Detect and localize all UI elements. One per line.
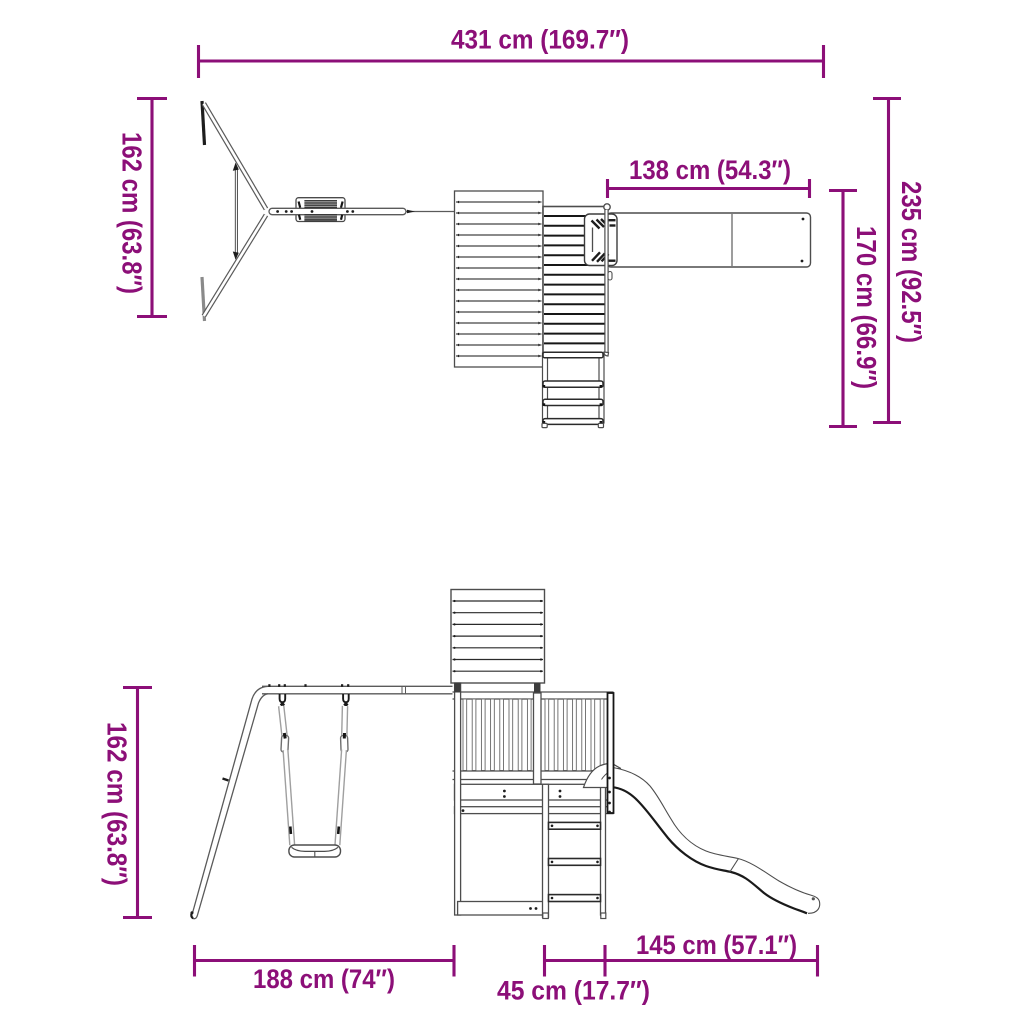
- svg-text:45 cm (17.7″): 45 cm (17.7″): [497, 976, 650, 1006]
- svg-text:170 cm (66.9″): 170 cm (66.9″): [851, 226, 882, 389]
- svg-text:235 cm (92.5″): 235 cm (92.5″): [896, 181, 927, 343]
- svg-text:431 cm (169.7″): 431 cm (169.7″): [451, 25, 629, 55]
- svg-text:162 cm (63.8″): 162 cm (63.8″): [102, 722, 133, 886]
- svg-text:188 cm (74″): 188 cm (74″): [253, 964, 395, 994]
- svg-text:138 cm (54.3″): 138 cm (54.3″): [629, 155, 791, 185]
- svg-text:145 cm (57.1″): 145 cm (57.1″): [636, 930, 797, 960]
- svg-text:162 cm (63.8″): 162 cm (63.8″): [117, 132, 148, 294]
